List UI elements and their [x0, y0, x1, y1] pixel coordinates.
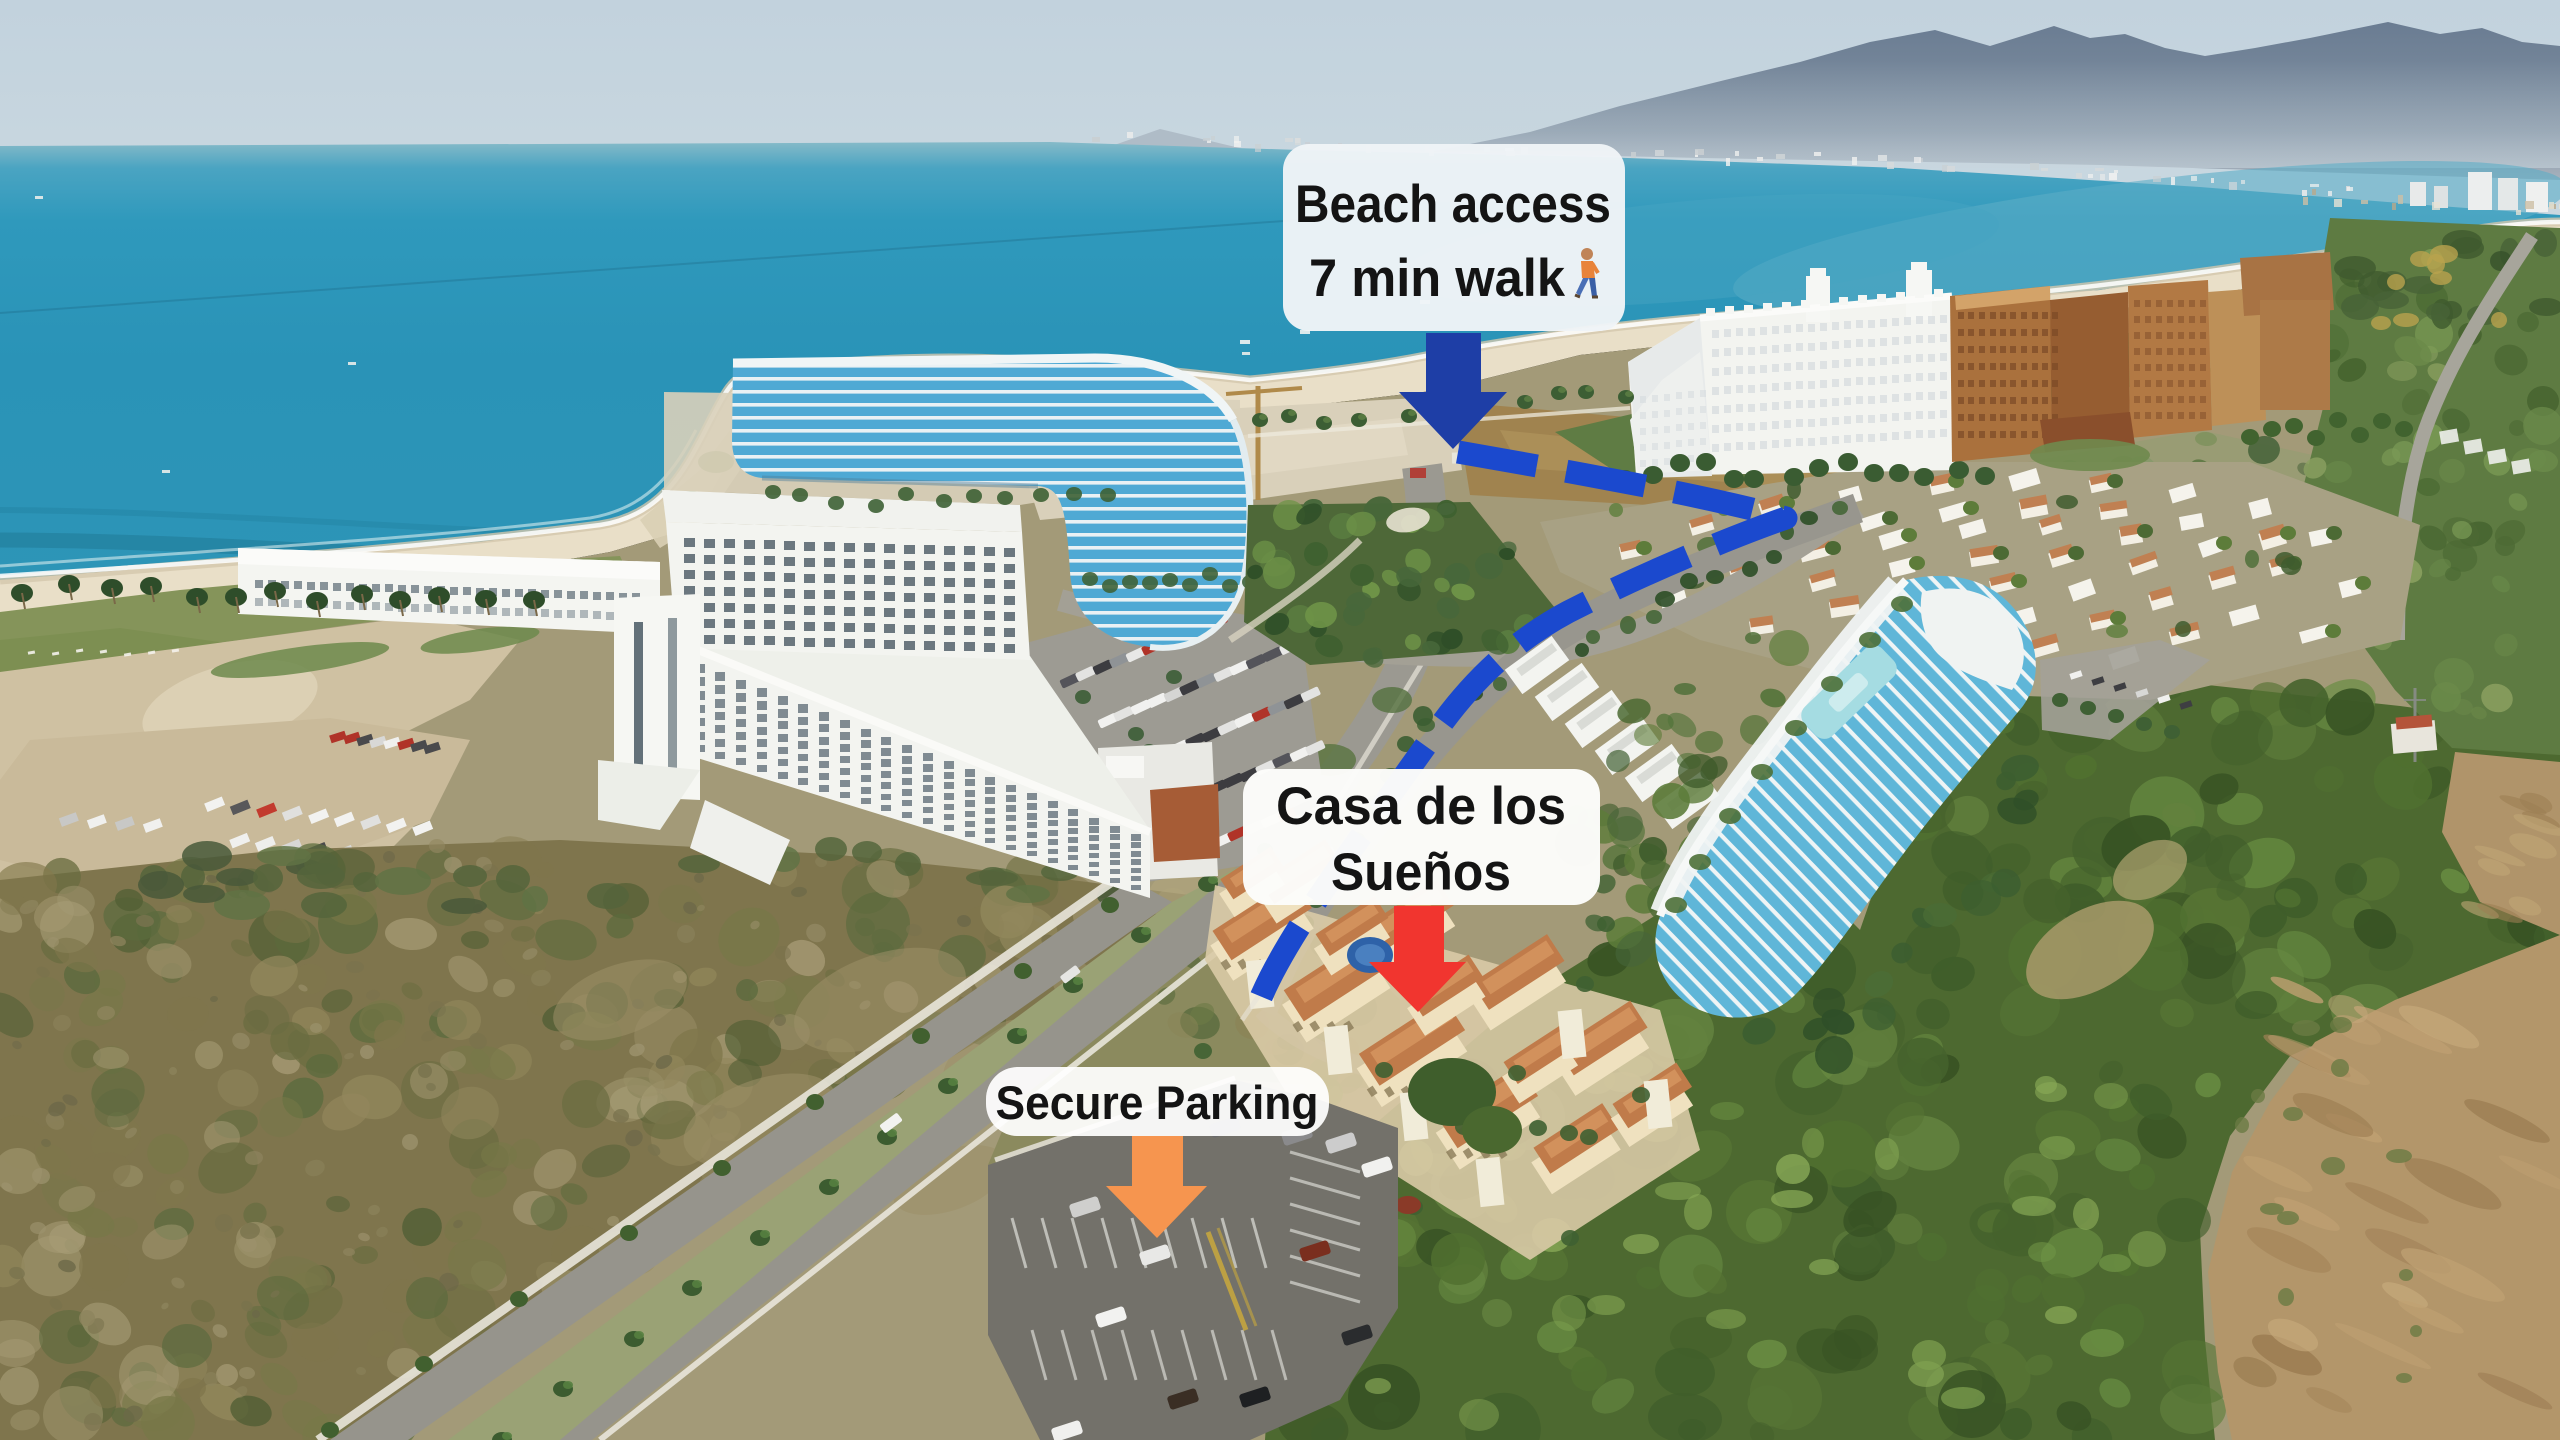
svg-text:Secure Parking: Secure Parking	[996, 1076, 1319, 1129]
svg-text:Sueños: Sueños	[1331, 843, 1511, 902]
svg-text:Beach access: Beach access	[1295, 175, 1611, 234]
svg-text:7 min walk: 7 min walk	[1309, 249, 1565, 308]
svg-text:Casa de los: Casa de los	[1276, 777, 1566, 836]
